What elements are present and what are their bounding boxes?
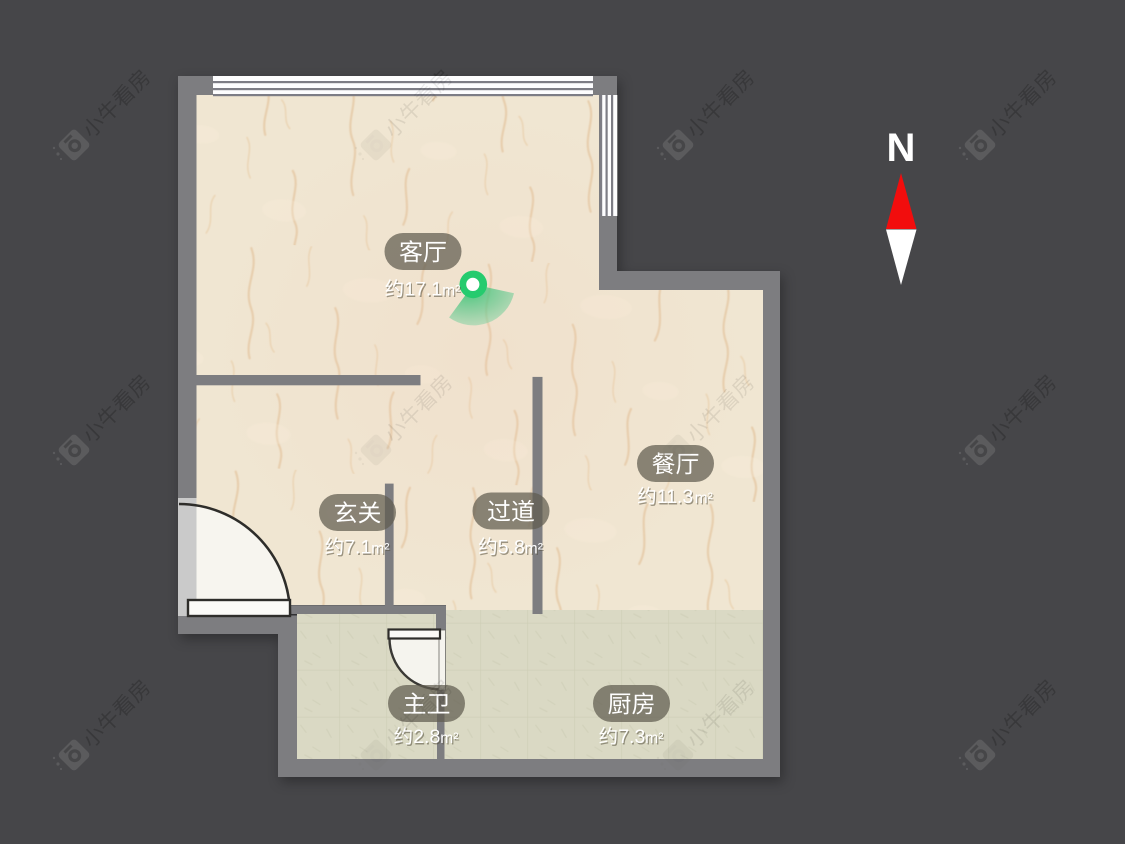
svg-text:m²: m² [440,730,458,747]
svg-text:17.1: 17.1 [404,279,442,301]
svg-text:11.3: 11.3 [657,486,694,508]
svg-text:7.3: 7.3 [618,726,645,748]
svg-text:m²: m² [645,730,663,747]
svg-text:7.1: 7.1 [344,537,371,559]
svg-text:5.8: 5.8 [498,537,525,559]
svg-text:m²: m² [695,490,713,507]
svg-text:m²: m² [442,283,460,300]
svg-text:N: N [887,126,916,170]
svg-text:m²: m² [525,541,543,558]
svg-text:2.8: 2.8 [413,726,440,748]
svg-text:m²: m² [371,541,389,558]
